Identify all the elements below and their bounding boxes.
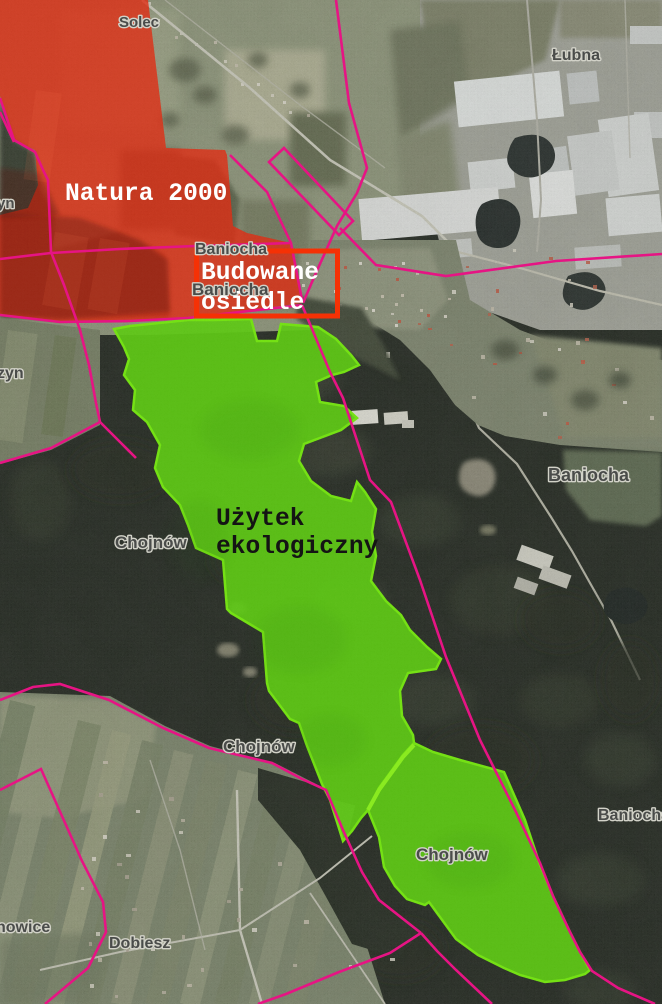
svg-text:ekologiczny: ekologiczny [216, 534, 379, 561]
svg-text:nowice: nowice [0, 919, 50, 936]
svg-text:Łubna: Łubna [552, 47, 600, 64]
svg-text:Baniocha: Baniocha [598, 807, 662, 824]
svg-text:Użytek: Użytek [216, 506, 305, 533]
svg-text:zyn: zyn [0, 365, 24, 382]
svg-text:Chojnów: Chojnów [115, 533, 188, 552]
svg-text:osiedle: osiedle [201, 290, 304, 317]
svg-text:Baniocha: Baniocha [548, 465, 630, 485]
svg-text:Budowane: Budowane [201, 260, 319, 287]
svg-text:Natura 2000: Natura 2000 [65, 181, 227, 208]
svg-text:Chojnów: Chojnów [416, 845, 489, 864]
svg-text:yn: yn [0, 195, 15, 212]
svg-text:Baniocha: Baniocha [195, 241, 267, 258]
svg-text:Dobiesz: Dobiesz [109, 935, 170, 952]
svg-text:Chojnów: Chojnów [223, 737, 296, 756]
svg-text:Solec: Solec [119, 14, 159, 31]
